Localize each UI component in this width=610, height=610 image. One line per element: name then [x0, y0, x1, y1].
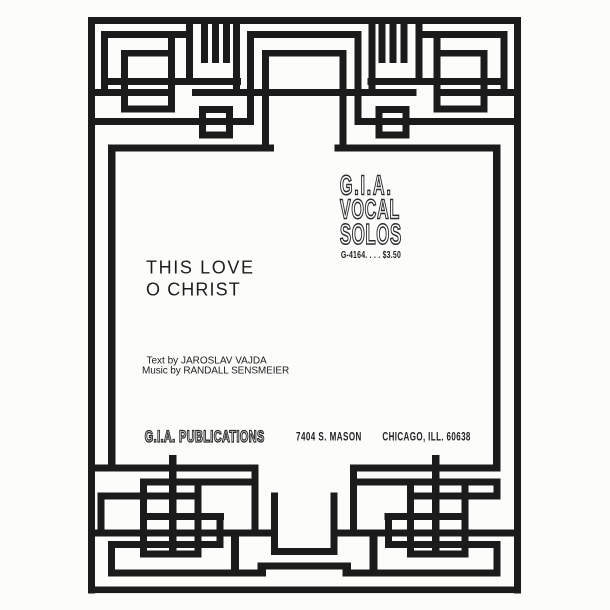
svg-text:7404 S. MASON: 7404 S. MASON [296, 431, 361, 444]
svg-text:Music by RANDALL SENSMEIER: Music by RANDALL SENSMEIER [142, 366, 289, 377]
svg-text:SOLOS: SOLOS [340, 220, 401, 252]
svg-text:THIS LOVE: THIS LOVE [146, 258, 255, 278]
svg-text:CHICAGO, ILL. 60638: CHICAGO, ILL. 60638 [382, 431, 470, 444]
svg-text:O CHRIST: O CHRIST [146, 280, 241, 300]
svg-text:G-4164. . . . $3.50: G-4164. . . . $3.50 [341, 249, 401, 261]
svg-text:G.I.A. PUBLICATIONS: G.I.A. PUBLICATIONS [145, 427, 264, 446]
